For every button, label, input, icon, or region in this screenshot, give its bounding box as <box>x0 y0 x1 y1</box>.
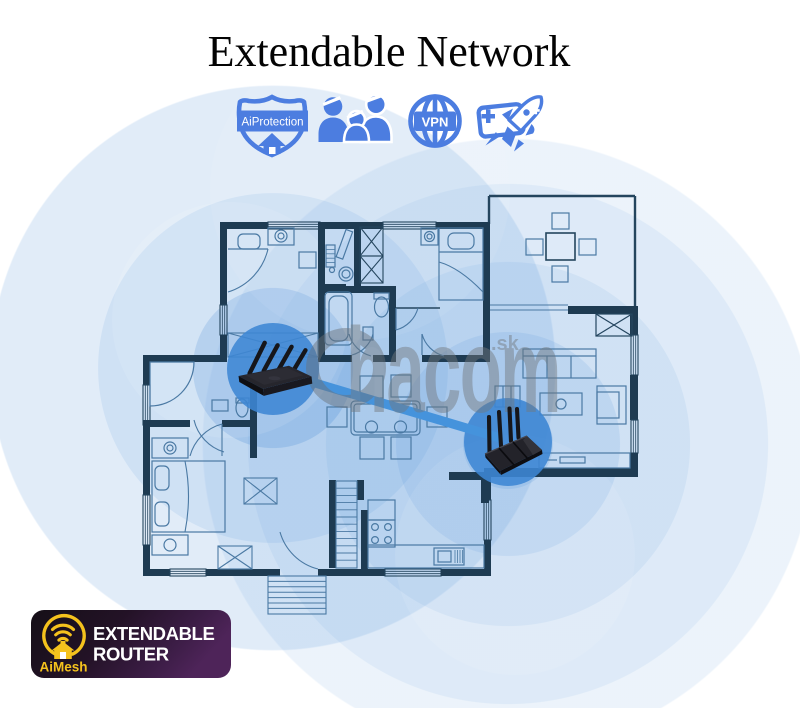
svg-text:VPN: VPN <box>422 115 449 130</box>
svg-text:AiProtection: AiProtection <box>241 117 303 129</box>
svg-text:ROUTER: ROUTER <box>93 644 169 665</box>
svg-text:AiMesh: AiMesh <box>39 660 87 675</box>
svg-text:Extendable Network: Extendable Network <box>208 27 571 76</box>
svg-text:EXTENDABLE: EXTENDABLE <box>93 623 214 644</box>
svg-text:.sk: .sk <box>491 333 520 355</box>
svg-text:hacom: hacom <box>346 303 560 438</box>
